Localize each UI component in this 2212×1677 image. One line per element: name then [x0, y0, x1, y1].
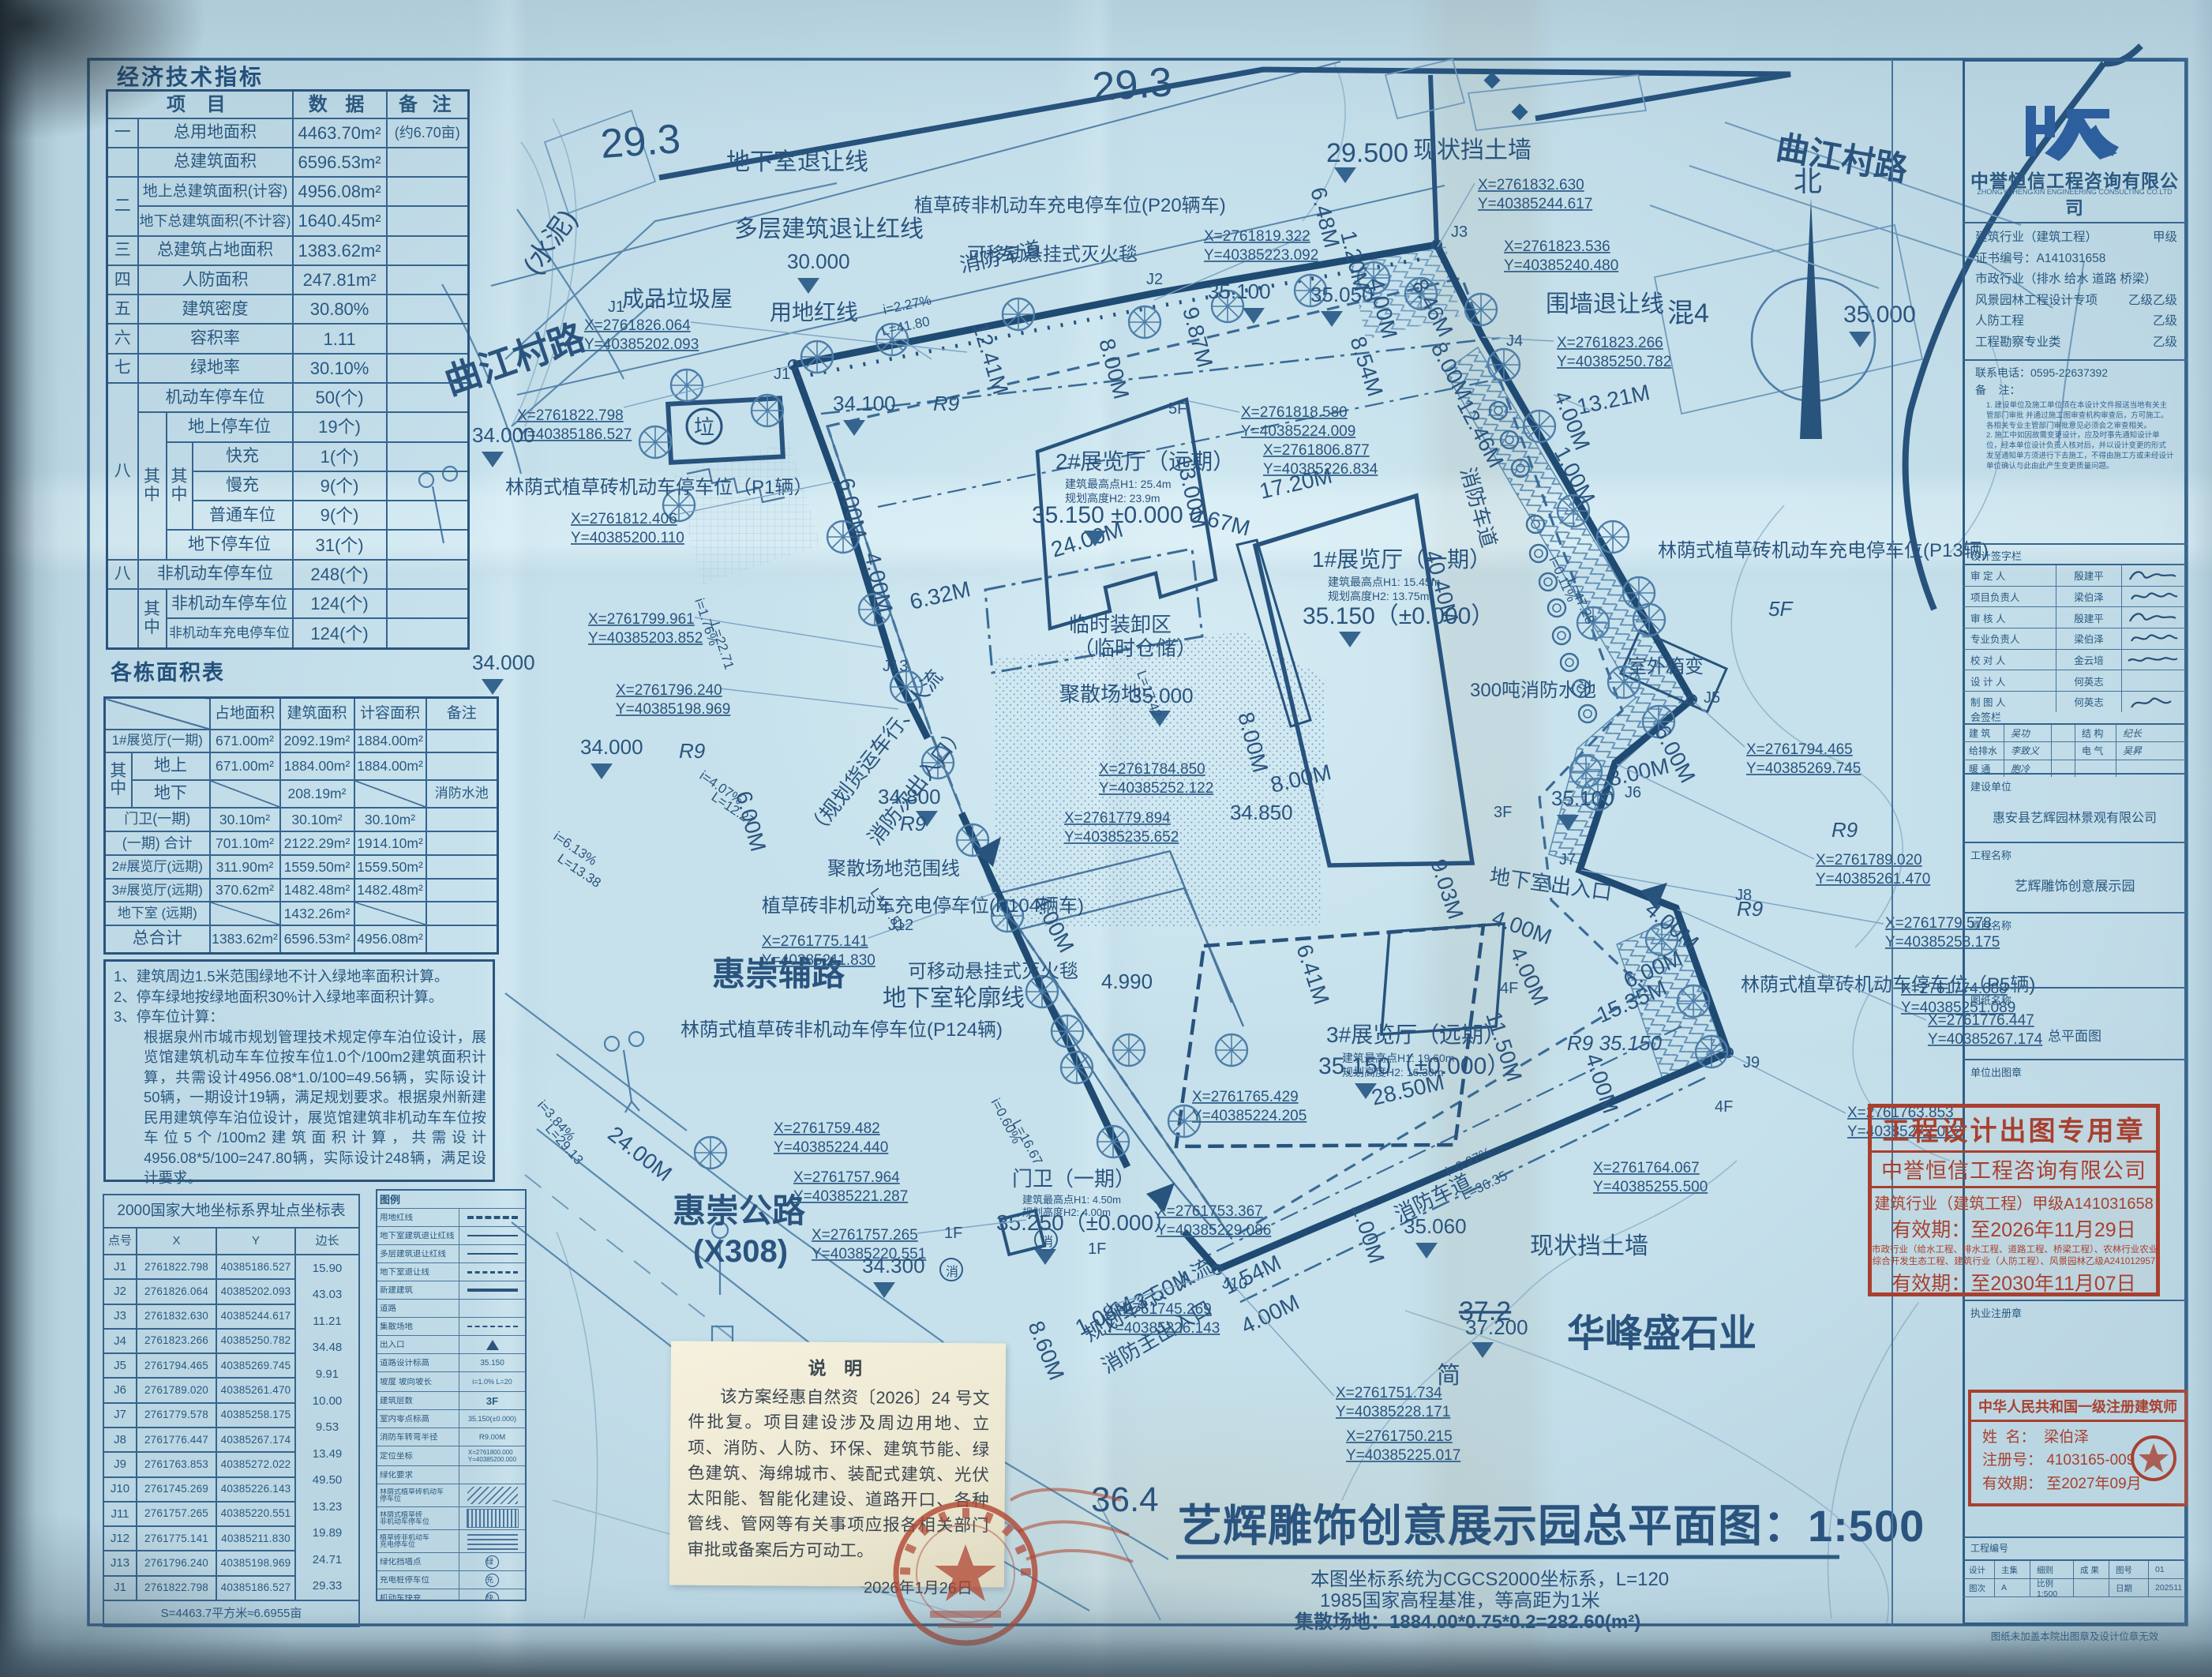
svg-text:35.250（±0.000）: 35.250（±0.000）	[996, 1210, 1175, 1235]
svg-text:混4: 混4	[1667, 298, 1709, 328]
svg-text:i=6.13%: i=6.13%	[551, 829, 600, 869]
svg-text:建筑最高点H1: 19.60m: 建筑最高点H1: 19.60m	[1342, 1052, 1454, 1064]
svg-text:Y=40385258.175: Y=40385258.175	[1885, 934, 2000, 951]
svg-text:i=3.84%: i=3.84%	[534, 1097, 579, 1144]
svg-text:Y=40385228.171: Y=40385228.171	[1336, 1404, 1450, 1420]
svg-text:35.150 ±0.000: 35.150 ±0.000	[1032, 502, 1183, 528]
svg-text:4.00M: 4.00M	[1505, 943, 1554, 1009]
svg-text:X=2761823.536: X=2761823.536	[1504, 238, 1610, 255]
svg-text:6.48M: 6.48M	[1306, 185, 1344, 250]
svg-text:L=16.67: L=16.67	[1009, 1117, 1045, 1168]
svg-text:多层建筑退让红线: 多层建筑退让红线	[734, 216, 924, 242]
svg-text:3F: 3F	[1494, 804, 1512, 821]
svg-text:5F: 5F	[1768, 597, 1794, 621]
svg-text:L=36.35: L=36.35	[1459, 1168, 1509, 1202]
svg-text:R9: R9	[1737, 897, 1763, 921]
svg-text:艺辉雕饰创意展示园总平面图：1:500: 艺辉雕饰创意展示园总平面图：1:500	[1178, 1501, 1925, 1551]
svg-text:X=2761757.265: X=2761757.265	[812, 1227, 918, 1244]
svg-text:X=2761753.367: X=2761753.367	[1157, 1203, 1263, 1220]
svg-text:规划高度H2: 4.00m: 规划高度H2: 4.00m	[1022, 1206, 1111, 1218]
svg-text:X=2761774.688: X=2761774.688	[1901, 981, 2008, 997]
svg-text:X=2761750.215: X=2761750.215	[1346, 1428, 1453, 1445]
svg-text:Y=40385250.782: Y=40385250.782	[1557, 354, 1671, 370]
svg-text:Y=40385251.089: Y=40385251.089	[1901, 1000, 2015, 1016]
svg-text:J10: J10	[1222, 1275, 1247, 1292]
svg-text:X=2761794.465: X=2761794.465	[1746, 741, 1853, 758]
svg-text:Y=40385226.834: Y=40385226.834	[1263, 461, 1378, 478]
svg-text:J3: J3	[1451, 223, 1468, 241]
svg-text:Y=40385211.830: Y=40385211.830	[762, 952, 875, 969]
svg-text:8.00M: 8.00M	[1427, 338, 1477, 403]
svg-text:现状挡土墙: 现状挡土墙	[1530, 1233, 1648, 1259]
svg-text:惠崇公路: 惠崇公路	[673, 1192, 806, 1229]
svg-text:（规划货运车行、人流: （规划货运车行、人流	[802, 665, 947, 841]
svg-text:L=13.38: L=13.38	[555, 851, 604, 891]
svg-text:1985国家高程基准，等高距为1米: 1985国家高程基准，等高距为1米	[1320, 1590, 1600, 1611]
svg-text:L=22.71: L=22.71	[707, 620, 737, 671]
svg-text:可移动悬挂式灭火毯: 可移动悬挂式灭火毯	[908, 961, 1078, 982]
svg-text:Y=40385244.617: Y=40385244.617	[1478, 196, 1592, 212]
svg-text:(水泥): (水泥)	[517, 204, 583, 280]
svg-text:X=2761759.482: X=2761759.482	[774, 1120, 880, 1137]
svg-text:X=2761751.734: X=2761751.734	[1336, 1385, 1442, 1401]
svg-text:i=4.07%: i=4.07%	[697, 768, 746, 808]
svg-text:3.50M: 3.50M	[1130, 1266, 1196, 1315]
svg-text:34.000: 34.000	[472, 423, 535, 447]
svg-text:规划高度H2: 16.30m: 规划高度H2: 16.30m	[1342, 1066, 1443, 1079]
svg-text:本图坐标系统为CGCS2000坐标系，L=120: 本图坐标系统为CGCS2000坐标系，L=120	[1310, 1569, 1669, 1590]
svg-text:X=2761775.141: X=2761775.141	[762, 933, 868, 950]
svg-text:40.40M: 40.40M	[1420, 548, 1463, 625]
svg-text:i=0.20%: i=0.20%	[902, 1381, 953, 1413]
svg-text:林荫式植草砖机动车充电停车位(P13辆): 林荫式植草砖机动车充电停车位(P13辆)	[1658, 540, 1989, 561]
svg-text:29.500: 29.500	[1326, 138, 1408, 168]
svg-text:X=2761818.580: X=2761818.580	[1241, 404, 1348, 421]
svg-text:4.00M: 4.00M	[1029, 891, 1079, 956]
svg-text:Y=40385203.852: Y=40385203.852	[588, 630, 703, 647]
svg-text:林荫式植草砖机动车停车位（P1辆）: 林荫式植草砖机动车停车位（P1辆）	[505, 477, 812, 498]
svg-text:Y=40385221.287: Y=40385221.287	[793, 1188, 908, 1205]
svg-text:消防车道: 消防车道	[1456, 464, 1502, 550]
svg-text:Y=40385224.205: Y=40385224.205	[1192, 1108, 1307, 1124]
svg-text:建筑最高点H1: 25.4m: 建筑最高点H1: 25.4m	[1065, 478, 1172, 490]
svg-text:简: 简	[1437, 1363, 1460, 1389]
svg-text:R9 35.150: R9 35.150	[1567, 1031, 1663, 1055]
svg-text:35.150（±0.000）: 35.150（±0.000）	[1303, 603, 1494, 629]
svg-text:X=2761799.961: X=2761799.961	[588, 611, 695, 628]
svg-text:X=2761823.266: X=2761823.266	[1557, 335, 1663, 351]
svg-text:i=0.11%: i=0.11%	[1546, 554, 1579, 604]
svg-text:X=2761819.322: X=2761819.322	[1204, 228, 1310, 245]
svg-text:J12: J12	[888, 917, 913, 934]
svg-text:24.00M: 24.00M	[1048, 517, 1126, 562]
svg-text:12.41M: 12.41M	[968, 320, 1013, 397]
svg-text:X=2761765.429: X=2761765.429	[1192, 1089, 1299, 1105]
svg-text:J2: J2	[1146, 271, 1163, 288]
svg-text:围墙退让线: 围墙退让线	[1546, 291, 1664, 317]
svg-text:29.3: 29.3	[599, 116, 682, 167]
svg-text:华峰盛石业: 华峰盛石业	[1567, 1313, 1756, 1355]
svg-text:X=2761796.240: X=2761796.240	[616, 682, 722, 699]
svg-text:林荫式植草砖非机动车停车位(P124辆): 林荫式植草砖非机动车停车位(P124辆)	[680, 1019, 1003, 1041]
svg-text:9.87M: 9.87M	[1178, 305, 1217, 370]
svg-text:i=0.60%: i=0.60%	[988, 1096, 1024, 1146]
svg-text:34.850: 34.850	[1230, 801, 1293, 824]
svg-text:J1: J1	[608, 298, 624, 316]
svg-text:地下室出入口: 地下室出入口	[1488, 864, 1614, 904]
svg-text:4.00M: 4.00M	[1640, 897, 1704, 955]
svg-text:8.46M: 8.46M	[1408, 275, 1458, 340]
svg-text:X=2761784.850: X=2761784.850	[1099, 761, 1205, 778]
svg-text:37.200: 37.200	[1465, 1315, 1528, 1339]
svg-text:24.00M: 24.00M	[603, 1121, 677, 1186]
svg-text:R9: R9	[679, 739, 705, 763]
svg-text:35.000: 35.000	[1130, 684, 1194, 707]
svg-text:Y=40385224.009: Y=40385224.009	[1241, 423, 1355, 440]
svg-text:35.150（±0.000）: 35.150（±0.000）	[1318, 1053, 1510, 1079]
svg-text:集散场地：1884.00*0.75*0.2=282.60(m: 集散场地：1884.00*0.75*0.2=282.60(m²)	[1294, 1611, 1640, 1633]
svg-text:X=2761776.447: X=2761776.447	[1928, 1012, 2034, 1029]
svg-text:4.00M: 4.00M	[860, 550, 898, 615]
svg-text:X=2761757.964: X=2761757.964	[793, 1169, 900, 1186]
svg-text:4.990: 4.990	[1101, 970, 1153, 993]
svg-text:R9: R9	[1831, 818, 1858, 842]
svg-text:4F: 4F	[1500, 980, 1518, 997]
svg-text:34.000: 34.000	[580, 735, 643, 759]
svg-text:J1: J1	[774, 366, 790, 383]
svg-text:地下室退让线: 地下室退让线	[726, 149, 868, 175]
svg-text:现状挡土墙: 现状挡土墙	[1413, 137, 1532, 163]
svg-text:L=41.80: L=41.80	[880, 313, 932, 338]
svg-text:消防次出入口）: 消防次出入口）	[863, 722, 970, 850]
svg-text:成品垃圾屋: 成品垃圾屋	[622, 287, 733, 311]
svg-text:X=2761789.020: X=2761789.020	[1816, 852, 1922, 869]
svg-text:4.00M: 4.00M	[1580, 1050, 1623, 1116]
svg-text:Y=40385235.652: Y=40385235.652	[1064, 829, 1179, 846]
svg-text:X=2761826.064: X=2761826.064	[584, 317, 691, 334]
svg-text:1.20M: 1.20M	[1336, 228, 1374, 294]
svg-text:4.00M: 4.00M	[1549, 388, 1595, 454]
svg-text:i=0.27%: i=0.27%	[1443, 1144, 1494, 1179]
svg-text:6.32M: 6.32M	[907, 576, 973, 614]
svg-text:5F: 5F	[1168, 400, 1187, 418]
svg-text:Y=40385225.017: Y=40385225.017	[1346, 1447, 1460, 1464]
svg-text:X=2761779.894: X=2761779.894	[1064, 810, 1171, 827]
svg-text:L=47.28: L=47.28	[1564, 576, 1598, 626]
svg-text:37.2: 37.2	[1459, 1296, 1511, 1326]
svg-text:34.100: 34.100	[833, 392, 896, 415]
svg-text:Y=40385202.093: Y=40385202.093	[584, 336, 699, 353]
svg-text:消防主出入口: 消防主出入口	[1097, 1296, 1216, 1378]
svg-text:Y=40385252.122: Y=40385252.122	[1099, 780, 1213, 797]
svg-text:29.3: 29.3	[1091, 59, 1174, 111]
svg-text:Y=40385267.174: Y=40385267.174	[1928, 1031, 2043, 1048]
svg-text:Y=40385226.143: Y=40385226.143	[1105, 1320, 1220, 1337]
svg-text:300吨消防水池: 300吨消防水池	[1470, 680, 1596, 701]
svg-text:消: 消	[946, 1265, 958, 1279]
svg-text:1#展览厅（一期）: 1#展览厅（一期）	[1312, 547, 1491, 572]
svg-text:17.20M: 17.20M	[1257, 463, 1334, 504]
svg-text:Y=40385223.092: Y=40385223.092	[1204, 247, 1318, 264]
svg-text:R9: R9	[900, 812, 926, 835]
svg-text:8.00M: 8.00M	[1233, 710, 1273, 775]
svg-text:X=2761832.630: X=2761832.630	[1478, 177, 1584, 193]
svg-text:4F: 4F	[1715, 1098, 1733, 1116]
svg-text:Y=40385240.480: Y=40385240.480	[1504, 257, 1618, 274]
svg-text:3#展览厅（远期）: 3#展览厅（远期）	[1326, 1022, 1505, 1047]
svg-text:28.50M: 28.50M	[1369, 1070, 1446, 1110]
svg-text:12.46M: 12.46M	[1453, 395, 1509, 471]
svg-text:X=2761822.798: X=2761822.798	[517, 407, 624, 424]
svg-text:可移动悬挂式灭火毯: 可移动悬挂式灭火毯	[967, 244, 1138, 265]
svg-text:曲江村路: 曲江村路	[1773, 129, 1911, 189]
svg-text:34.800: 34.800	[878, 785, 941, 808]
svg-text:室外箱变: 室外箱变	[1628, 656, 1704, 677]
svg-text:Y=40385269.745: Y=40385269.745	[1746, 760, 1861, 777]
svg-text:X=2761763.853: X=2761763.853	[1847, 1105, 1954, 1121]
svg-text:L=29.13: L=29.13	[542, 1121, 587, 1168]
svg-text:地下室轮廓线: 地下室轮廓线	[883, 985, 1025, 1011]
svg-text:Y=40385261.470: Y=40385261.470	[1816, 871, 1930, 887]
svg-text:聚散场地范围线: 聚散场地范围线	[827, 858, 960, 880]
svg-text:J5: J5	[1704, 689, 1720, 707]
svg-text:6.00M: 6.00M	[1650, 721, 1700, 786]
svg-text:Y=40385272.022: Y=40385272.022	[1847, 1124, 1962, 1140]
svg-text:植草砖非机动车充电停车位(P104辆车): 植草砖非机动车充电停车位(P104辆车)	[762, 895, 1084, 917]
svg-text:(X308): (X308)	[693, 1234, 788, 1269]
svg-text:L=24.95: L=24.95	[925, 1401, 977, 1434]
svg-text:X=2761745.269: X=2761745.269	[1105, 1301, 1212, 1318]
svg-text:15.35M: 15.35M	[1593, 975, 1670, 1027]
svg-text:建筑最高点H1: 4.50m: 建筑最高点H1: 4.50m	[1022, 1194, 1121, 1206]
svg-text:34.000: 34.000	[472, 651, 535, 674]
svg-text:Y=40385186.527: Y=40385186.527	[517, 426, 632, 443]
svg-text:垃: 垃	[694, 415, 714, 439]
svg-text:9.03M: 9.03M	[1426, 856, 1468, 922]
svg-text:8.00M: 8.00M	[1094, 336, 1134, 402]
svg-text:35.050: 35.050	[1310, 283, 1374, 306]
svg-text:8.54M: 8.54M	[1345, 333, 1388, 400]
svg-text:35.100: 35.100	[1551, 786, 1614, 810]
svg-text:R9: R9	[933, 392, 959, 415]
svg-text:X=2761779.578: X=2761779.578	[1885, 915, 1992, 932]
svg-text:34.300: 34.300	[862, 1254, 925, 1277]
svg-text:聚散场地: 聚散场地	[1059, 682, 1142, 706]
svg-text:Y=40385255.500: Y=40385255.500	[1593, 1179, 1708, 1195]
svg-text:消防车道: 消防车道	[958, 237, 1043, 277]
svg-text:4.00M: 4.00M	[1363, 276, 1402, 341]
svg-text:门卫（一期）: 门卫（一期）	[1012, 1167, 1135, 1191]
svg-text:6.41M: 6.41M	[1292, 941, 1334, 1007]
svg-text:30.000: 30.000	[787, 249, 850, 273]
svg-text:林荫式植草砖机动车停车位（P5辆): 林荫式植草砖机动车停车位（P5辆)	[1741, 974, 2035, 996]
svg-text:6.00M: 6.00M	[834, 475, 872, 541]
svg-text:1.54M: 1.54M	[1219, 1250, 1285, 1299]
svg-text:11.50M: 11.50M	[1481, 1008, 1527, 1084]
svg-text:L=17.42: L=17.42	[1134, 669, 1164, 720]
svg-text:1.00M: 1.00M	[1347, 1200, 1389, 1266]
svg-text:13.21M: 13.21M	[1575, 380, 1652, 419]
svg-text:建筑最高点H1: 15.45m: 建筑最高点H1: 15.45m	[1328, 576, 1440, 588]
svg-text:Y=40385198.969: Y=40385198.969	[616, 701, 730, 718]
svg-text:4.00M: 4.00M	[1237, 1289, 1303, 1338]
svg-text:i=2.27%: i=2.27%	[882, 292, 933, 317]
svg-text:4.00M: 4.00M	[1489, 906, 1555, 950]
svg-text:J6: J6	[1625, 784, 1641, 801]
svg-text:35.060: 35.060	[1404, 1214, 1467, 1238]
svg-text:J7: J7	[1559, 851, 1576, 869]
svg-text:惠崇辅路: 惠崇辅路	[712, 955, 845, 992]
svg-text:消: 消	[1040, 1235, 1053, 1249]
svg-text:35.100: 35.100	[1208, 279, 1271, 303]
svg-text:用地红线: 用地红线	[770, 300, 858, 325]
svg-text:35.000: 35.000	[1843, 302, 1916, 328]
svg-text:2#展览厅（远期）: 2#展览厅（远期）	[1055, 449, 1235, 474]
svg-text:植草砖非机动车充电停车位(P20辆车): 植草砖非机动车充电停车位(P20辆车)	[914, 195, 1226, 216]
svg-text:X=2761764.067: X=2761764.067	[1593, 1160, 1700, 1176]
svg-text:0.67M: 0.67M	[1187, 502, 1253, 541]
svg-text:8.60M: 8.60M	[1023, 1318, 1069, 1384]
svg-text:Y=40385200.110: Y=40385200.110	[571, 530, 684, 546]
svg-text:Y=40385220.551: Y=40385220.551	[812, 1246, 926, 1262]
svg-text:8.00M: 8.00M	[1268, 760, 1333, 797]
svg-text:Y=40385224.440: Y=40385224.440	[774, 1139, 888, 1156]
svg-text:L=12.27: L=12.27	[709, 790, 758, 829]
svg-text:规划高度H2: 13.75m: 规划高度H2: 13.75m	[1328, 590, 1429, 602]
svg-text:规划车行、人流、: 规划车行、人流、	[1080, 1244, 1234, 1346]
svg-text:北: 北	[1794, 165, 1822, 197]
svg-text:36.4: 36.4	[1091, 1480, 1159, 1519]
svg-text:6.00M: 6.00M	[731, 789, 770, 854]
svg-text:X=2761806.877: X=2761806.877	[1263, 442, 1370, 459]
svg-text:X=2761812.406: X=2761812.406	[571, 511, 677, 527]
svg-text:1.08M: 1.08M	[1071, 1291, 1138, 1340]
svg-text:规划高度H2: 23.9m: 规划高度H2: 23.9m	[1065, 492, 1160, 505]
svg-text:1F: 1F	[944, 1225, 962, 1242]
svg-text:消防车道: 消防车道	[1390, 1169, 1475, 1227]
svg-text:J8: J8	[1735, 887, 1752, 904]
svg-text:曲江村路: 曲江村路	[439, 316, 590, 402]
svg-text:J4: J4	[1506, 332, 1523, 350]
svg-text:1F: 1F	[1088, 1240, 1106, 1258]
svg-text:6.00M: 6.00M	[1620, 946, 1686, 993]
svg-text:L=17.52: L=17.52	[868, 885, 908, 934]
svg-text:13.00M: 13.00M	[1172, 453, 1212, 531]
svg-text:临时装卸区: 临时装卸区	[1069, 613, 1172, 636]
svg-text:（临时仓储）: （临时仓储）	[1074, 636, 1197, 660]
svg-text:i=1.76%: i=1.76%	[692, 596, 721, 647]
svg-text:J13: J13	[883, 658, 908, 675]
svg-text:8.00M: 8.00M	[1606, 753, 1671, 791]
svg-text:Y=40385229.086: Y=40385229.086	[1157, 1222, 1271, 1239]
svg-text:J9: J9	[1743, 1054, 1760, 1071]
svg-text:1.00M: 1.00M	[1550, 442, 1600, 508]
